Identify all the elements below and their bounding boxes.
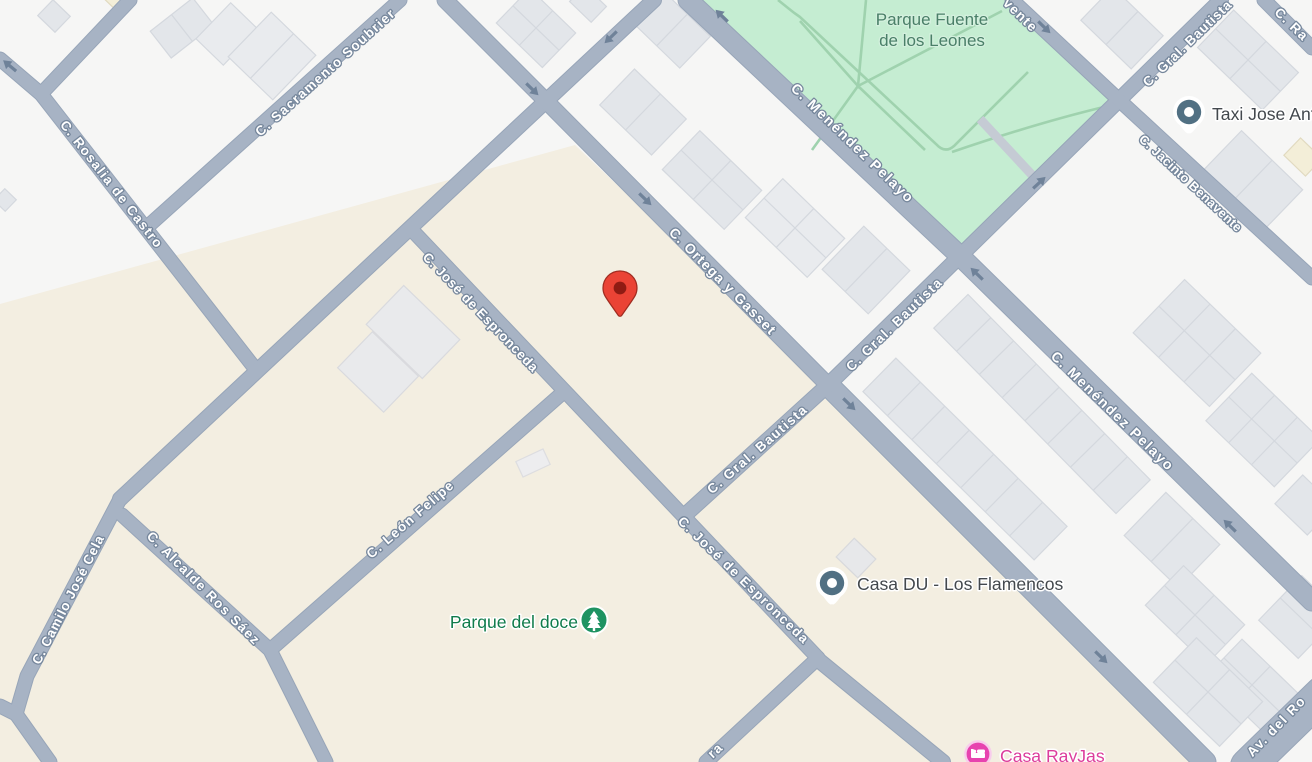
svg-text:Parque del doce: Parque del doce [450,612,578,632]
svg-text:Parque Fuente: Parque Fuente [876,10,988,29]
svg-text:Casa RayJas: Casa RayJas [1000,746,1105,762]
svg-text:de los Leones: de los Leones [879,31,985,50]
svg-text:Casa DU - Los Flamencos: Casa DU - Los Flamencos [857,574,1064,594]
svg-text:Taxi Jose Ant: Taxi Jose Ant [1212,104,1312,124]
